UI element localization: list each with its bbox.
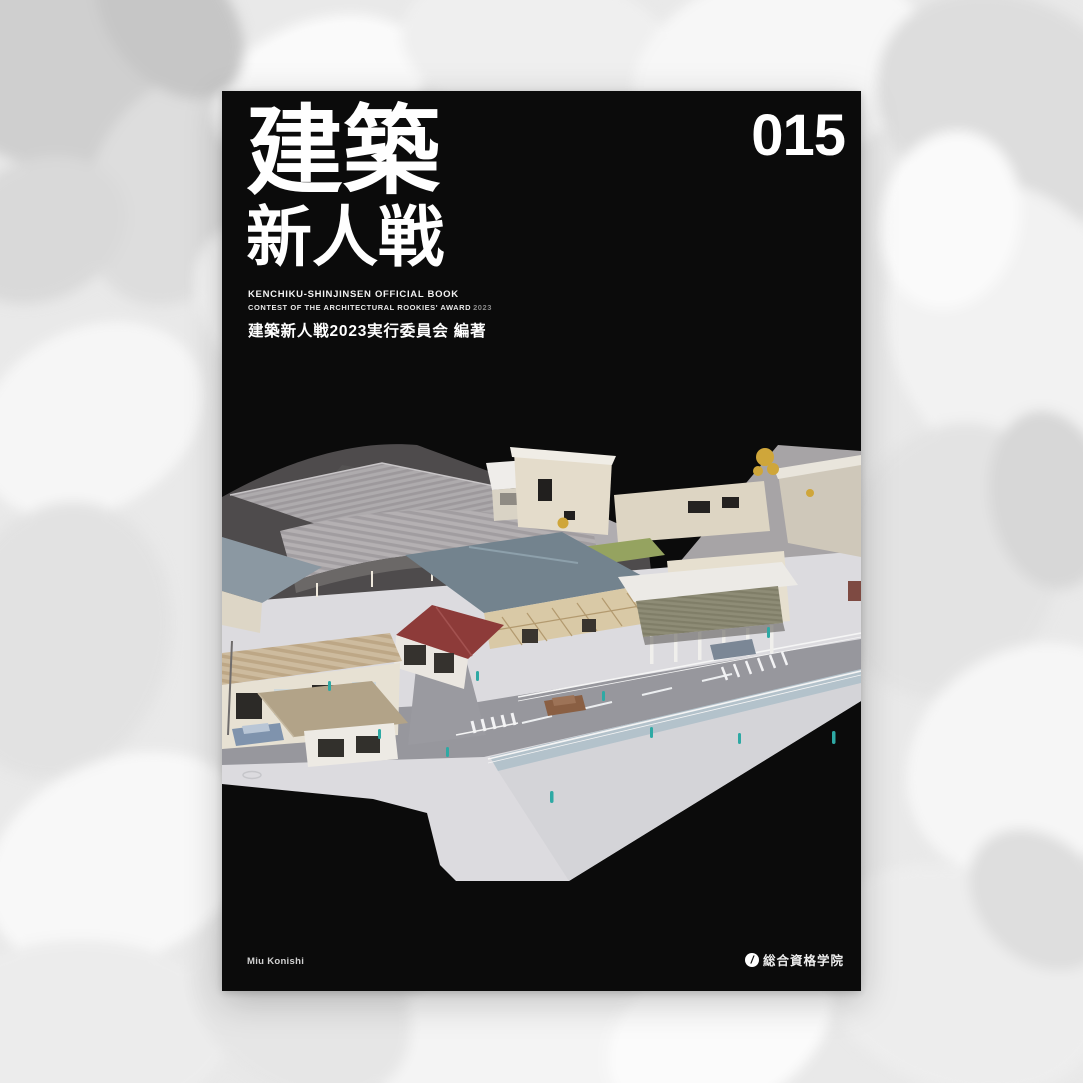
subtitle-year: 2023 bbox=[473, 303, 492, 312]
subtitle-english-line2: CONTEST OF THE ARCHITECTURAL ROOKIES' AW… bbox=[248, 303, 492, 312]
photographer-credit: Miu Konishi bbox=[247, 956, 304, 967]
subtitle-english-line1: KENCHIKU-SHINJINSEN OFFICIAL BOOK bbox=[248, 289, 492, 300]
sogo-shikaku-logo-icon: / bbox=[745, 953, 759, 967]
publisher-name: 総合資格学院 bbox=[763, 950, 844, 969]
issue-number: 015 bbox=[751, 107, 845, 165]
architectural-model-photo bbox=[222, 435, 861, 895]
title-line-1: 建築 bbox=[246, 103, 444, 200]
publisher-credit: / 総合資格学院 bbox=[745, 950, 844, 969]
title-block: 建築 新人戦 bbox=[246, 103, 444, 270]
subtitle-contest-text: CONTEST OF THE ARCHITECTURAL ROOKIES' AW… bbox=[248, 303, 471, 312]
book-cover: 015 建築 新人戦 KENCHIKU-SHINJINSEN OFFICIAL … bbox=[222, 91, 861, 991]
title-line-2: 新人戦 bbox=[246, 204, 444, 270]
subtitle-block: KENCHIKU-SHINJINSEN OFFICIAL BOOK CONTES… bbox=[248, 289, 492, 341]
author-line: 建築新人戦2023実行委員会 編著 bbox=[248, 319, 492, 341]
